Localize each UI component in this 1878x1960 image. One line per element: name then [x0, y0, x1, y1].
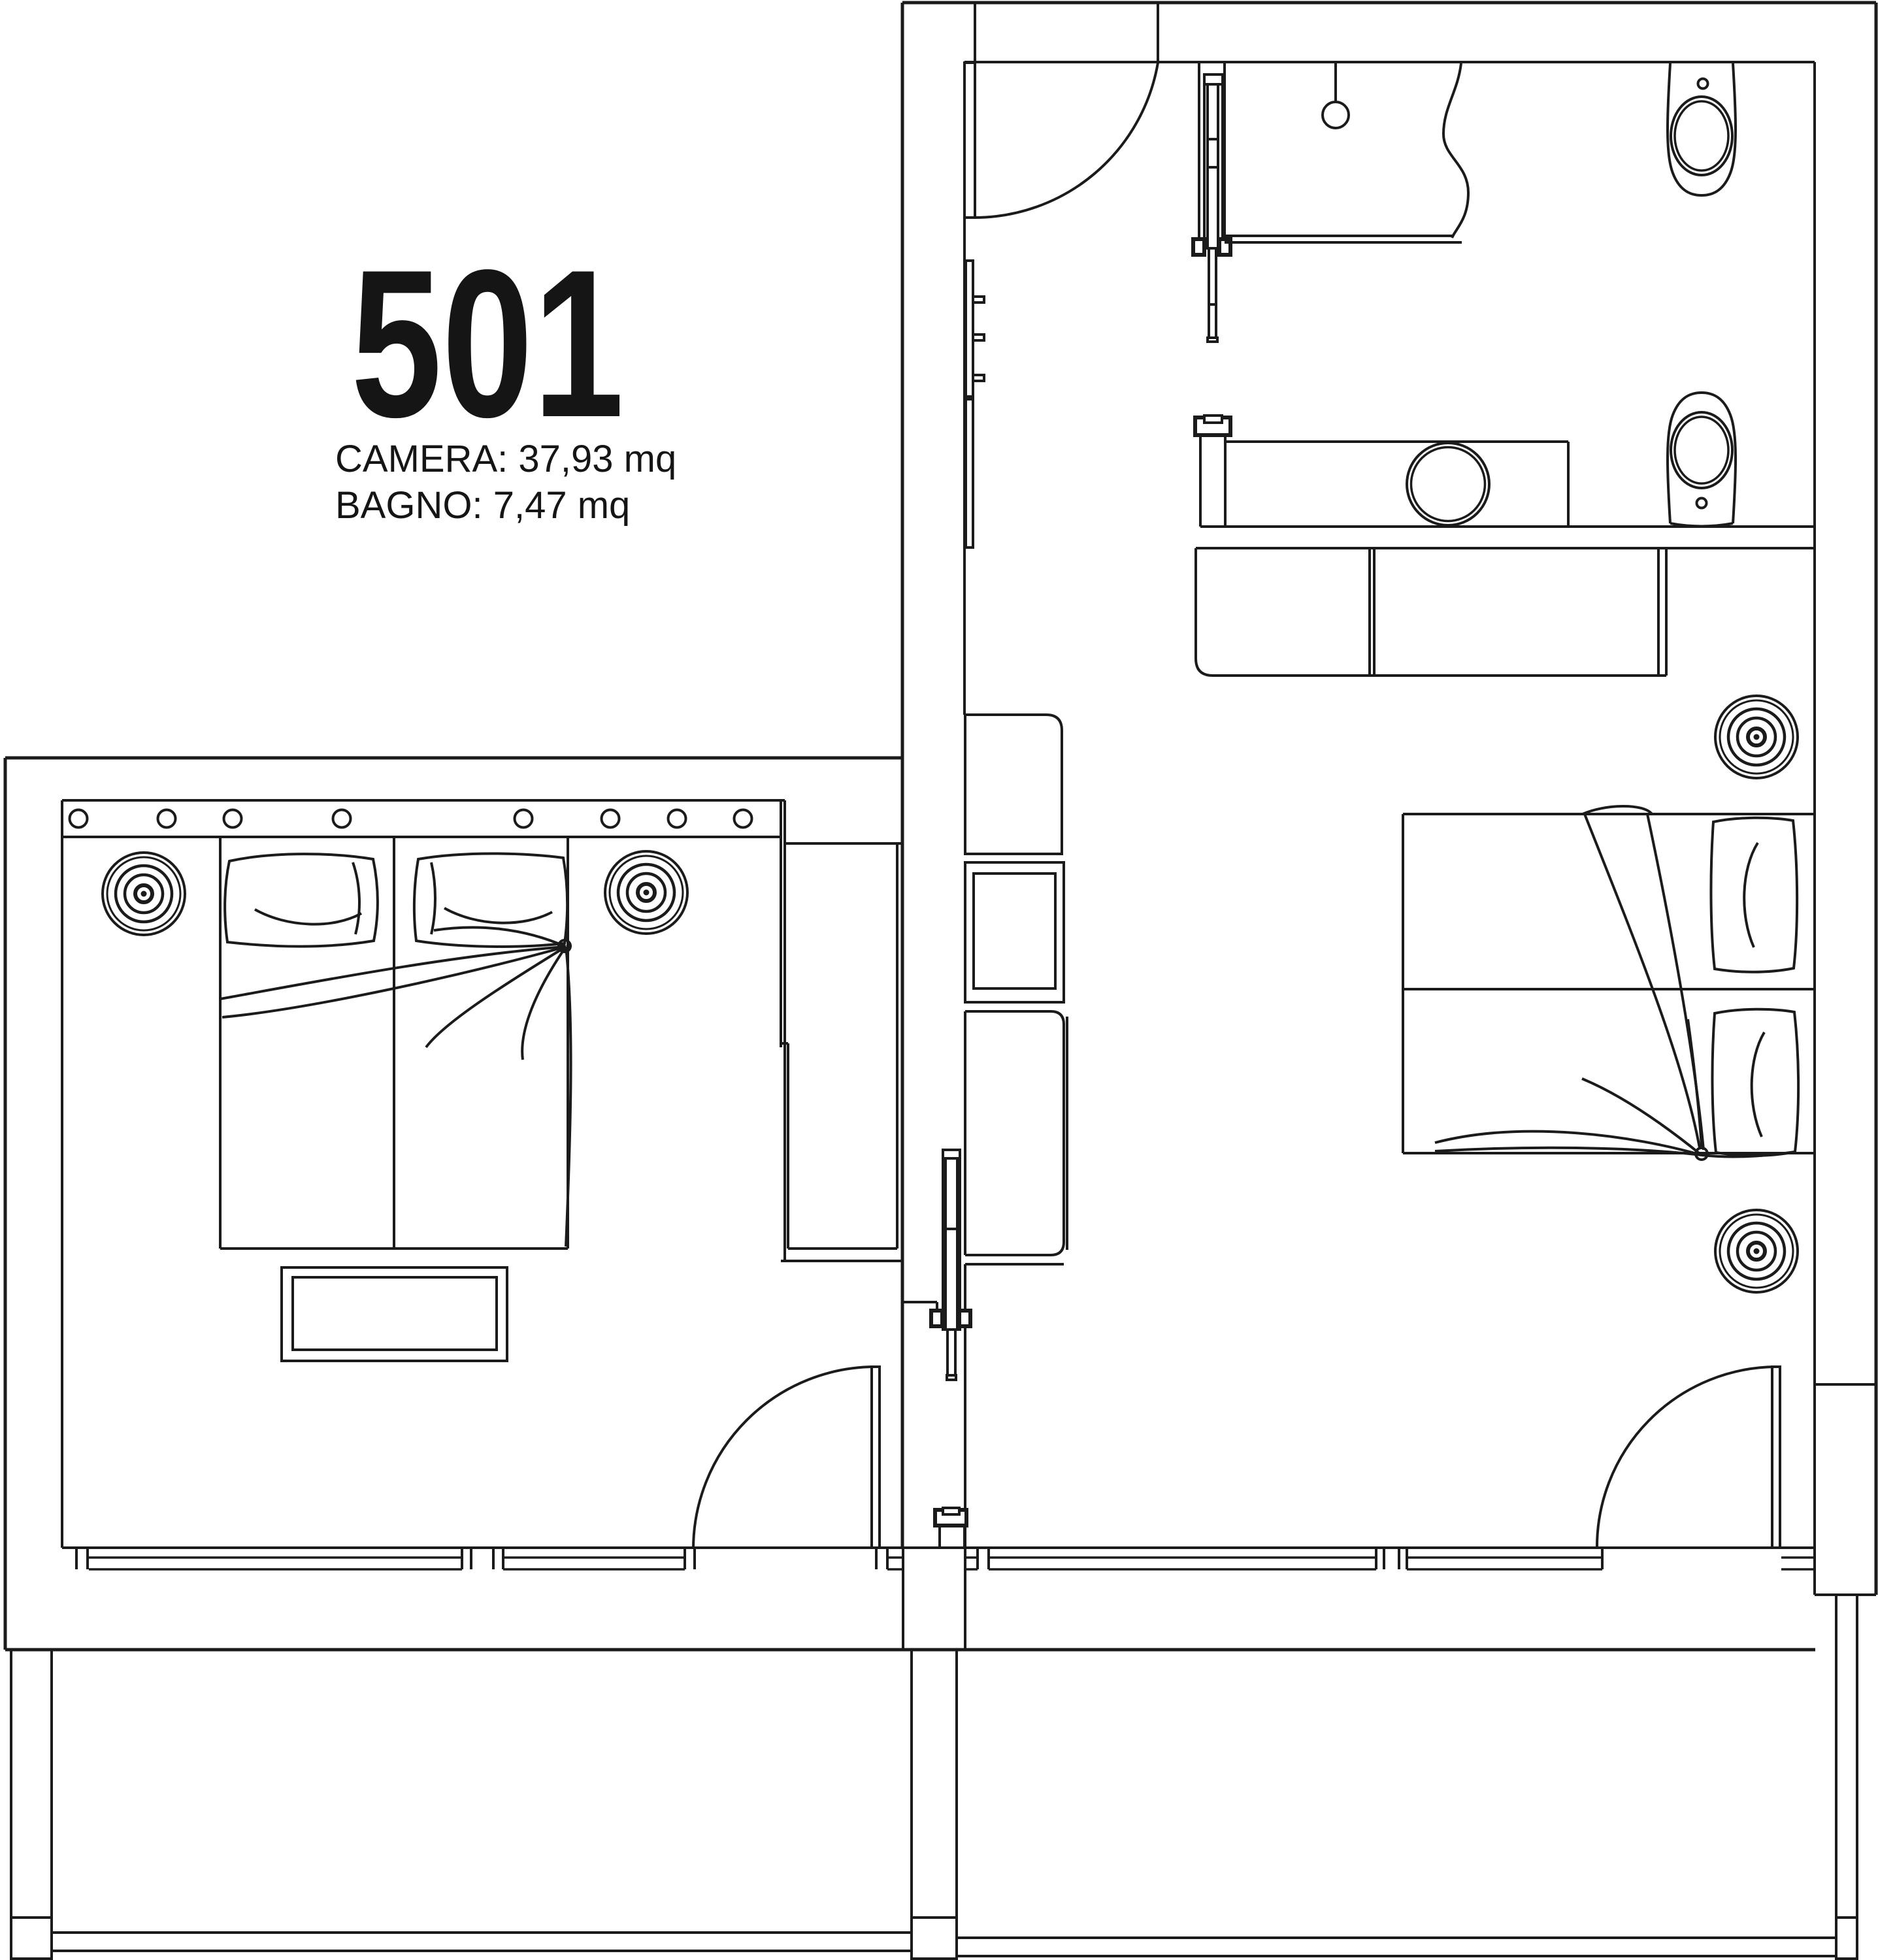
svg-text:CAMERA: 37,93 mq: CAMERA: 37,93 mq [335, 438, 676, 480]
svg-text:501: 501 [351, 227, 624, 461]
svg-text:BAGNO: 7,47 mq: BAGNO: 7,47 mq [335, 484, 630, 527]
